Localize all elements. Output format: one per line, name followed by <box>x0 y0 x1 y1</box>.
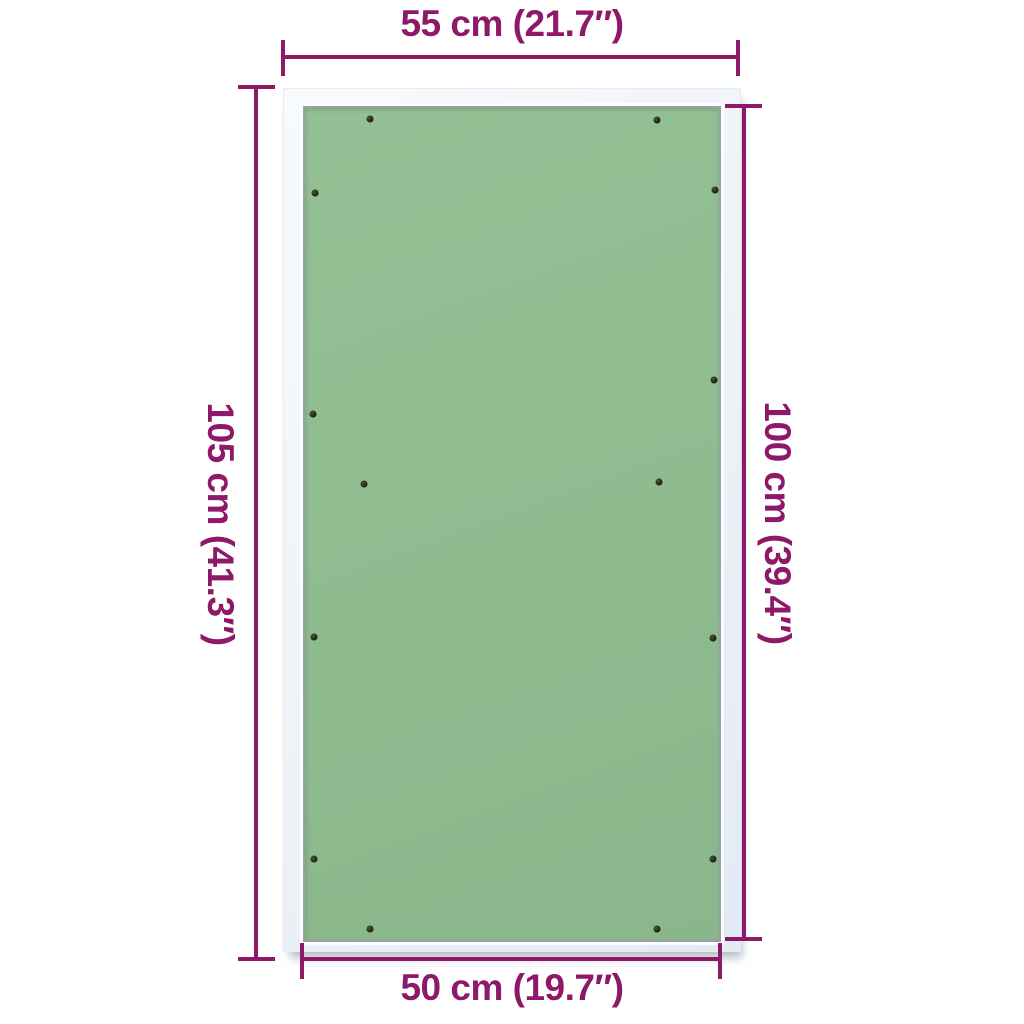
product-dimension-diagram: 55 cm (21.7″) 50 cm (19.7″) 105 cm (41.3… <box>0 0 1024 1024</box>
dimension-bottom-line <box>302 957 722 961</box>
screw <box>311 634 318 641</box>
screw <box>710 635 717 642</box>
dimension-top-tick-right <box>736 40 740 76</box>
dimension-top-line <box>283 55 740 59</box>
dimension-bottom-label: 50 cm (19.7″) <box>302 966 722 1010</box>
screw <box>312 190 319 197</box>
screw <box>656 479 663 486</box>
dimension-left-label: 105 cm (41.3″) <box>198 364 242 684</box>
dimension-top-tick-left <box>281 40 285 76</box>
screw <box>711 377 718 384</box>
dimension-left-line <box>254 85 258 961</box>
screw <box>367 116 374 123</box>
dimension-right-tick-top <box>725 104 762 108</box>
dimension-right-line <box>742 104 746 941</box>
screw <box>712 187 719 194</box>
dimension-right-tick-bottom <box>725 937 762 941</box>
screw <box>710 856 717 863</box>
screw <box>310 411 317 418</box>
dimension-right-label: 100 cm (39.4″) <box>755 363 799 683</box>
dimension-left-tick-top <box>238 85 275 89</box>
screw <box>361 481 368 488</box>
screw <box>311 856 318 863</box>
screw <box>654 926 661 933</box>
plasterboard-panel <box>303 106 721 942</box>
access-panel-frame <box>283 88 741 952</box>
dimension-top-label: 55 cm (21.7″) <box>283 2 741 46</box>
dimension-left-tick-bottom <box>238 957 275 961</box>
screw <box>367 926 374 933</box>
screw <box>654 117 661 124</box>
